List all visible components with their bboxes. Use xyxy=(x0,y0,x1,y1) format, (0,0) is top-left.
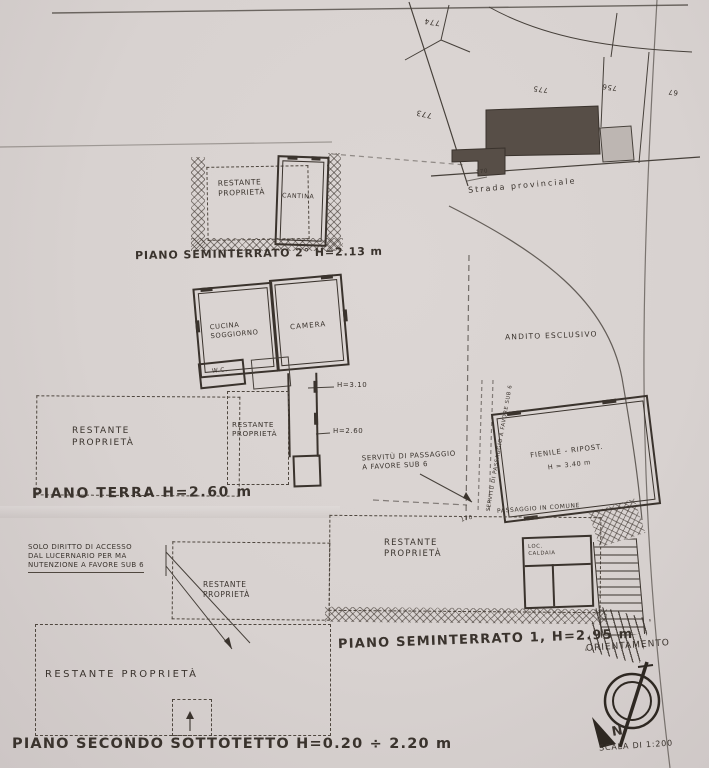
map-building-stippled xyxy=(600,126,634,162)
servitu-arrowhead xyxy=(463,492,472,502)
restante-left-label: RESTANTE PROPRIETÀ xyxy=(72,426,134,449)
parcel-number: 775 xyxy=(532,83,548,94)
wall-segment xyxy=(314,413,318,425)
entry-room xyxy=(251,356,291,389)
sheet-top-edge-line xyxy=(52,5,688,13)
restante-proprieta-area xyxy=(36,395,241,496)
wall-segment xyxy=(200,287,212,292)
height-label-310: H=3.10 xyxy=(337,381,367,390)
boundary-dash xyxy=(332,154,466,165)
parcel-number: 756 xyxy=(601,81,617,92)
scanned-floor-plan-sheet: RESTANTE PROPRIETÀ CANTINA PIANO SEMINTE… xyxy=(0,0,709,768)
height-label-260: H=2.60 xyxy=(333,427,363,436)
restante-proprieta-area xyxy=(172,541,331,620)
plan-terra-caption: PIANO TERRA H=2.60 m xyxy=(32,483,253,503)
road-tick xyxy=(467,177,487,181)
fold-line xyxy=(0,142,332,147)
wall-segment xyxy=(552,564,555,606)
compass-icon xyxy=(592,662,659,748)
stair-landing xyxy=(292,455,321,488)
corridor xyxy=(287,373,318,458)
hatch-border xyxy=(325,607,607,624)
room-caldaia: LOC. CALDAIA xyxy=(522,535,594,609)
restante-right-label: RESTANTE PROPRIETÀ xyxy=(232,420,277,439)
sheet-right-edge-line xyxy=(644,0,670,768)
step-boundary-dash xyxy=(373,500,467,505)
caldaia-label: LOC. CALDAIA xyxy=(528,543,556,558)
paper-crease xyxy=(0,506,340,518)
wall-segment xyxy=(287,155,297,159)
parcel-number: 774 xyxy=(423,16,440,28)
plan-sottotetto-caption: PIANO SECONDO SOTTOTETTO H=0.20 ÷ 2.20 m xyxy=(12,735,452,754)
wall-segment xyxy=(602,399,616,405)
restante-proprieta-label: RESTANTE PROPRIETÀ xyxy=(218,177,266,198)
wall-segment xyxy=(311,156,320,160)
restante-big-label: RESTANTE PROPRIETÀ xyxy=(45,668,198,681)
parcel-number: 67 xyxy=(667,86,678,96)
lucernario-area xyxy=(172,699,212,736)
restante-mid-label: RESTANTE PROPRIETÀ xyxy=(203,580,250,600)
fienile-height-label: H = 3.40 m xyxy=(547,458,591,472)
parcel-boundary xyxy=(405,5,470,60)
wc-label: W.C. xyxy=(212,366,228,375)
cantina-label: CANTINA xyxy=(282,192,315,201)
wall-segment xyxy=(525,563,591,567)
parcel-boundary xyxy=(489,7,692,52)
hatch-border xyxy=(191,157,205,251)
wall-segment xyxy=(195,320,200,332)
restante-label: RESTANTE PROPRIETÀ xyxy=(384,538,442,560)
andito-dash-boundary xyxy=(466,255,469,520)
access-note: SOLO DIRITTO DI ACCESSO DAL LUCERNARIO P… xyxy=(28,543,144,573)
fienile-label: FIENILE - RIPOST. xyxy=(530,443,604,461)
wall-segment xyxy=(313,381,317,393)
wall-segment xyxy=(321,274,333,279)
